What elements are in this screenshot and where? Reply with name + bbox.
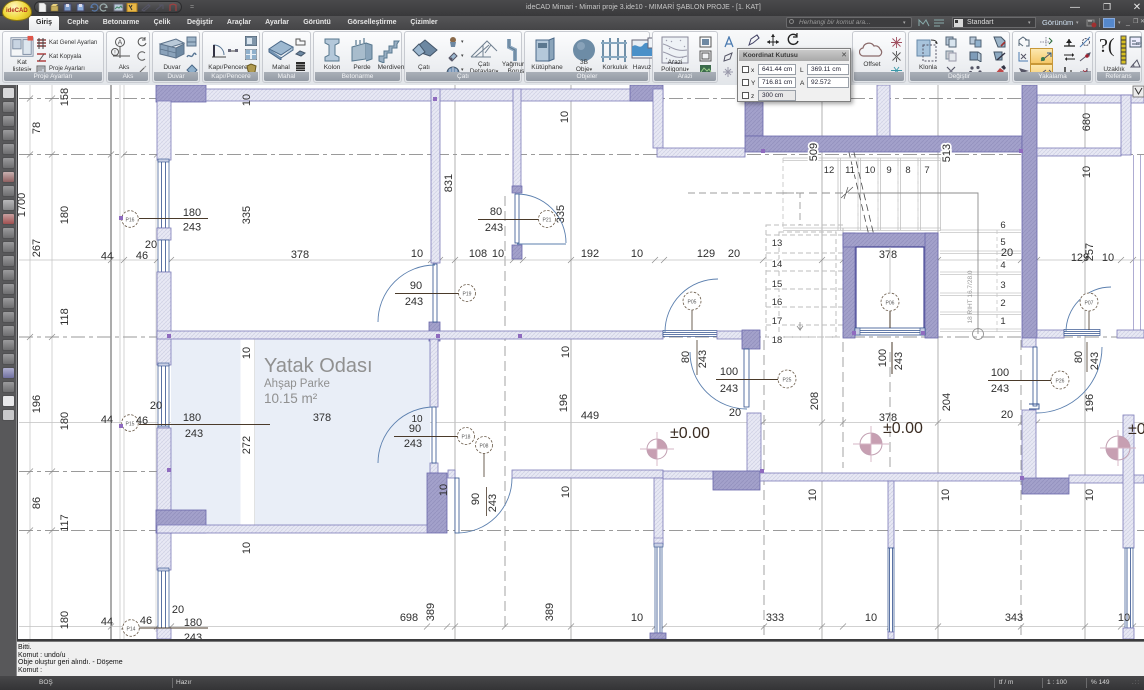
- svg-text:100: 100: [877, 349, 889, 367]
- svg-text:180: 180: [59, 611, 71, 629]
- svg-text:10: 10: [560, 346, 572, 358]
- svg-text:509: 509: [808, 143, 820, 161]
- svg-text:10: 10: [411, 248, 423, 260]
- svg-text:18: 18: [772, 335, 783, 346]
- svg-text:20: 20: [145, 239, 157, 251]
- svg-text:±0: ±0: [1128, 421, 1144, 438]
- svg-text:±0.00: ±0.00: [670, 425, 710, 442]
- svg-text:P05: P05: [688, 300, 697, 306]
- svg-text:A: A: [118, 40, 123, 47]
- svg-text:10: 10: [807, 489, 819, 501]
- svg-text:20: 20: [729, 407, 741, 419]
- svg-text:10: 10: [560, 486, 572, 498]
- svg-text:118: 118: [59, 308, 71, 326]
- svg-text:335: 335: [555, 205, 567, 223]
- svg-text:243: 243: [991, 383, 1009, 395]
- svg-text:78: 78: [31, 122, 43, 134]
- svg-text:10: 10: [438, 484, 450, 496]
- svg-text:P26: P26: [1056, 379, 1065, 385]
- svg-text:267: 267: [31, 239, 43, 257]
- svg-text:180: 180: [59, 412, 71, 430]
- svg-text:44: 44: [101, 251, 113, 263]
- svg-text:16: 16: [772, 297, 783, 308]
- svg-text:10: 10: [492, 248, 504, 260]
- svg-text:10: 10: [1118, 612, 1130, 624]
- svg-text:335: 335: [241, 206, 253, 224]
- svg-text:15: 15: [772, 279, 783, 290]
- svg-text:5: 5: [1000, 237, 1005, 248]
- svg-text:11: 11: [845, 165, 855, 176]
- svg-text:243: 243: [487, 494, 499, 512]
- svg-text:389: 389: [425, 603, 437, 621]
- svg-text:100: 100: [991, 367, 1009, 379]
- svg-text:Yatak Odası: Yatak Odası: [264, 355, 373, 377]
- svg-text:243: 243: [185, 428, 203, 440]
- svg-text:46: 46: [136, 415, 148, 427]
- svg-text:20: 20: [150, 400, 162, 412]
- svg-text:513: 513: [941, 144, 953, 162]
- svg-text:180: 180: [59, 206, 71, 224]
- svg-text:243: 243: [405, 296, 423, 308]
- svg-text:6: 6: [1000, 220, 1005, 231]
- svg-text:8: 8: [905, 165, 910, 176]
- svg-text:10: 10: [559, 111, 571, 123]
- svg-text:±0.00: ±0.00: [883, 420, 923, 437]
- svg-text:378: 378: [879, 249, 897, 261]
- svg-text:698: 698: [400, 612, 418, 624]
- svg-text:P06: P06: [886, 301, 895, 307]
- svg-text:10: 10: [241, 94, 253, 106]
- svg-text:20: 20: [728, 248, 740, 260]
- svg-text:180: 180: [183, 412, 201, 424]
- svg-text:243: 243: [697, 350, 709, 368]
- svg-text:243: 243: [1089, 352, 1101, 370]
- svg-text:Ahşap Parke: Ahşap Parke: [264, 378, 330, 390]
- svg-text:13: 13: [772, 238, 783, 249]
- svg-text:831: 831: [443, 174, 455, 192]
- svg-text:4: 4: [1000, 260, 1005, 271]
- svg-text:18 RIHT 16.7/28.0: 18 RIHT 16.7/28.0: [967, 270, 974, 323]
- svg-text:P18: P18: [462, 435, 471, 441]
- svg-text:10: 10: [865, 165, 876, 176]
- svg-text:12: 12: [824, 165, 835, 176]
- svg-text:243: 243: [485, 222, 503, 234]
- svg-text:272: 272: [241, 436, 253, 454]
- svg-text:378: 378: [291, 249, 309, 261]
- svg-text:86: 86: [31, 497, 43, 509]
- svg-text:257: 257: [1084, 243, 1096, 261]
- svg-text:80: 80: [1073, 351, 1085, 363]
- svg-text:14: 14: [772, 259, 783, 270]
- svg-text:389: 389: [544, 603, 556, 621]
- svg-text:3: 3: [1000, 280, 1005, 291]
- svg-text:10.15 m²: 10.15 m²: [264, 391, 318, 406]
- svg-text:208: 208: [809, 392, 821, 410]
- svg-text:192: 192: [581, 248, 599, 260]
- svg-text:243: 243: [893, 352, 905, 370]
- svg-text:9: 9: [886, 165, 891, 176]
- svg-text:243: 243: [720, 383, 738, 395]
- svg-text:196: 196: [31, 395, 43, 413]
- svg-text:80: 80: [680, 351, 692, 363]
- svg-text:46: 46: [140, 615, 152, 627]
- svg-text:204: 204: [941, 393, 953, 411]
- svg-text:10: 10: [1084, 489, 1096, 501]
- svg-text:P16: P16: [126, 218, 135, 224]
- svg-text:90: 90: [409, 423, 421, 435]
- svg-text:P19: P19: [463, 292, 472, 298]
- svg-text:20: 20: [172, 604, 184, 616]
- svg-text:20: 20: [1001, 409, 1013, 421]
- svg-text:180: 180: [183, 207, 201, 219]
- svg-text:378: 378: [313, 412, 331, 424]
- svg-text:10: 10: [241, 347, 253, 359]
- svg-text:100: 100: [720, 366, 738, 378]
- svg-text:P15: P15: [126, 422, 135, 428]
- svg-text:196: 196: [1084, 394, 1096, 412]
- svg-text:46: 46: [136, 250, 148, 262]
- svg-text:P08: P08: [480, 444, 489, 450]
- svg-text:680: 680: [1081, 113, 1093, 131]
- svg-text:80: 80: [490, 206, 502, 218]
- svg-text:10: 10: [865, 612, 877, 624]
- svg-text:2: 2: [1000, 298, 1005, 309]
- svg-text:m²: m²: [1136, 41, 1142, 47]
- svg-text:10: 10: [1102, 252, 1114, 264]
- svg-text:P21: P21: [543, 218, 552, 224]
- svg-text:243: 243: [184, 632, 202, 639]
- svg-text:180: 180: [184, 617, 202, 629]
- svg-text:P07: P07: [1085, 301, 1094, 307]
- svg-text:108: 108: [469, 248, 487, 260]
- svg-text:10: 10: [631, 248, 643, 260]
- svg-text:449: 449: [581, 410, 599, 422]
- svg-text:343: 343: [1005, 612, 1023, 624]
- svg-text:10: 10: [241, 542, 253, 554]
- svg-text:7: 7: [924, 165, 929, 176]
- svg-text:243: 243: [404, 438, 422, 450]
- svg-text:333: 333: [766, 612, 784, 624]
- svg-text:129: 129: [697, 248, 715, 260]
- svg-text:90: 90: [410, 280, 422, 292]
- svg-text:20: 20: [1001, 247, 1013, 259]
- svg-text:44: 44: [101, 414, 113, 426]
- svg-text:44: 44: [101, 616, 113, 628]
- svg-text:243: 243: [183, 222, 201, 234]
- svg-text:17: 17: [772, 316, 783, 327]
- svg-text:196: 196: [558, 394, 570, 412]
- svg-text:117: 117: [59, 514, 71, 532]
- svg-text:1700: 1700: [18, 193, 28, 217]
- svg-text:10: 10: [940, 489, 952, 501]
- svg-text:10: 10: [631, 612, 643, 624]
- svg-text:1: 1: [1000, 316, 1005, 327]
- svg-text:P14: P14: [127, 627, 136, 633]
- svg-text:158: 158: [59, 88, 71, 106]
- svg-text:P25: P25: [783, 378, 792, 384]
- svg-text:90: 90: [470, 493, 482, 505]
- svg-text:10: 10: [1081, 166, 1093, 178]
